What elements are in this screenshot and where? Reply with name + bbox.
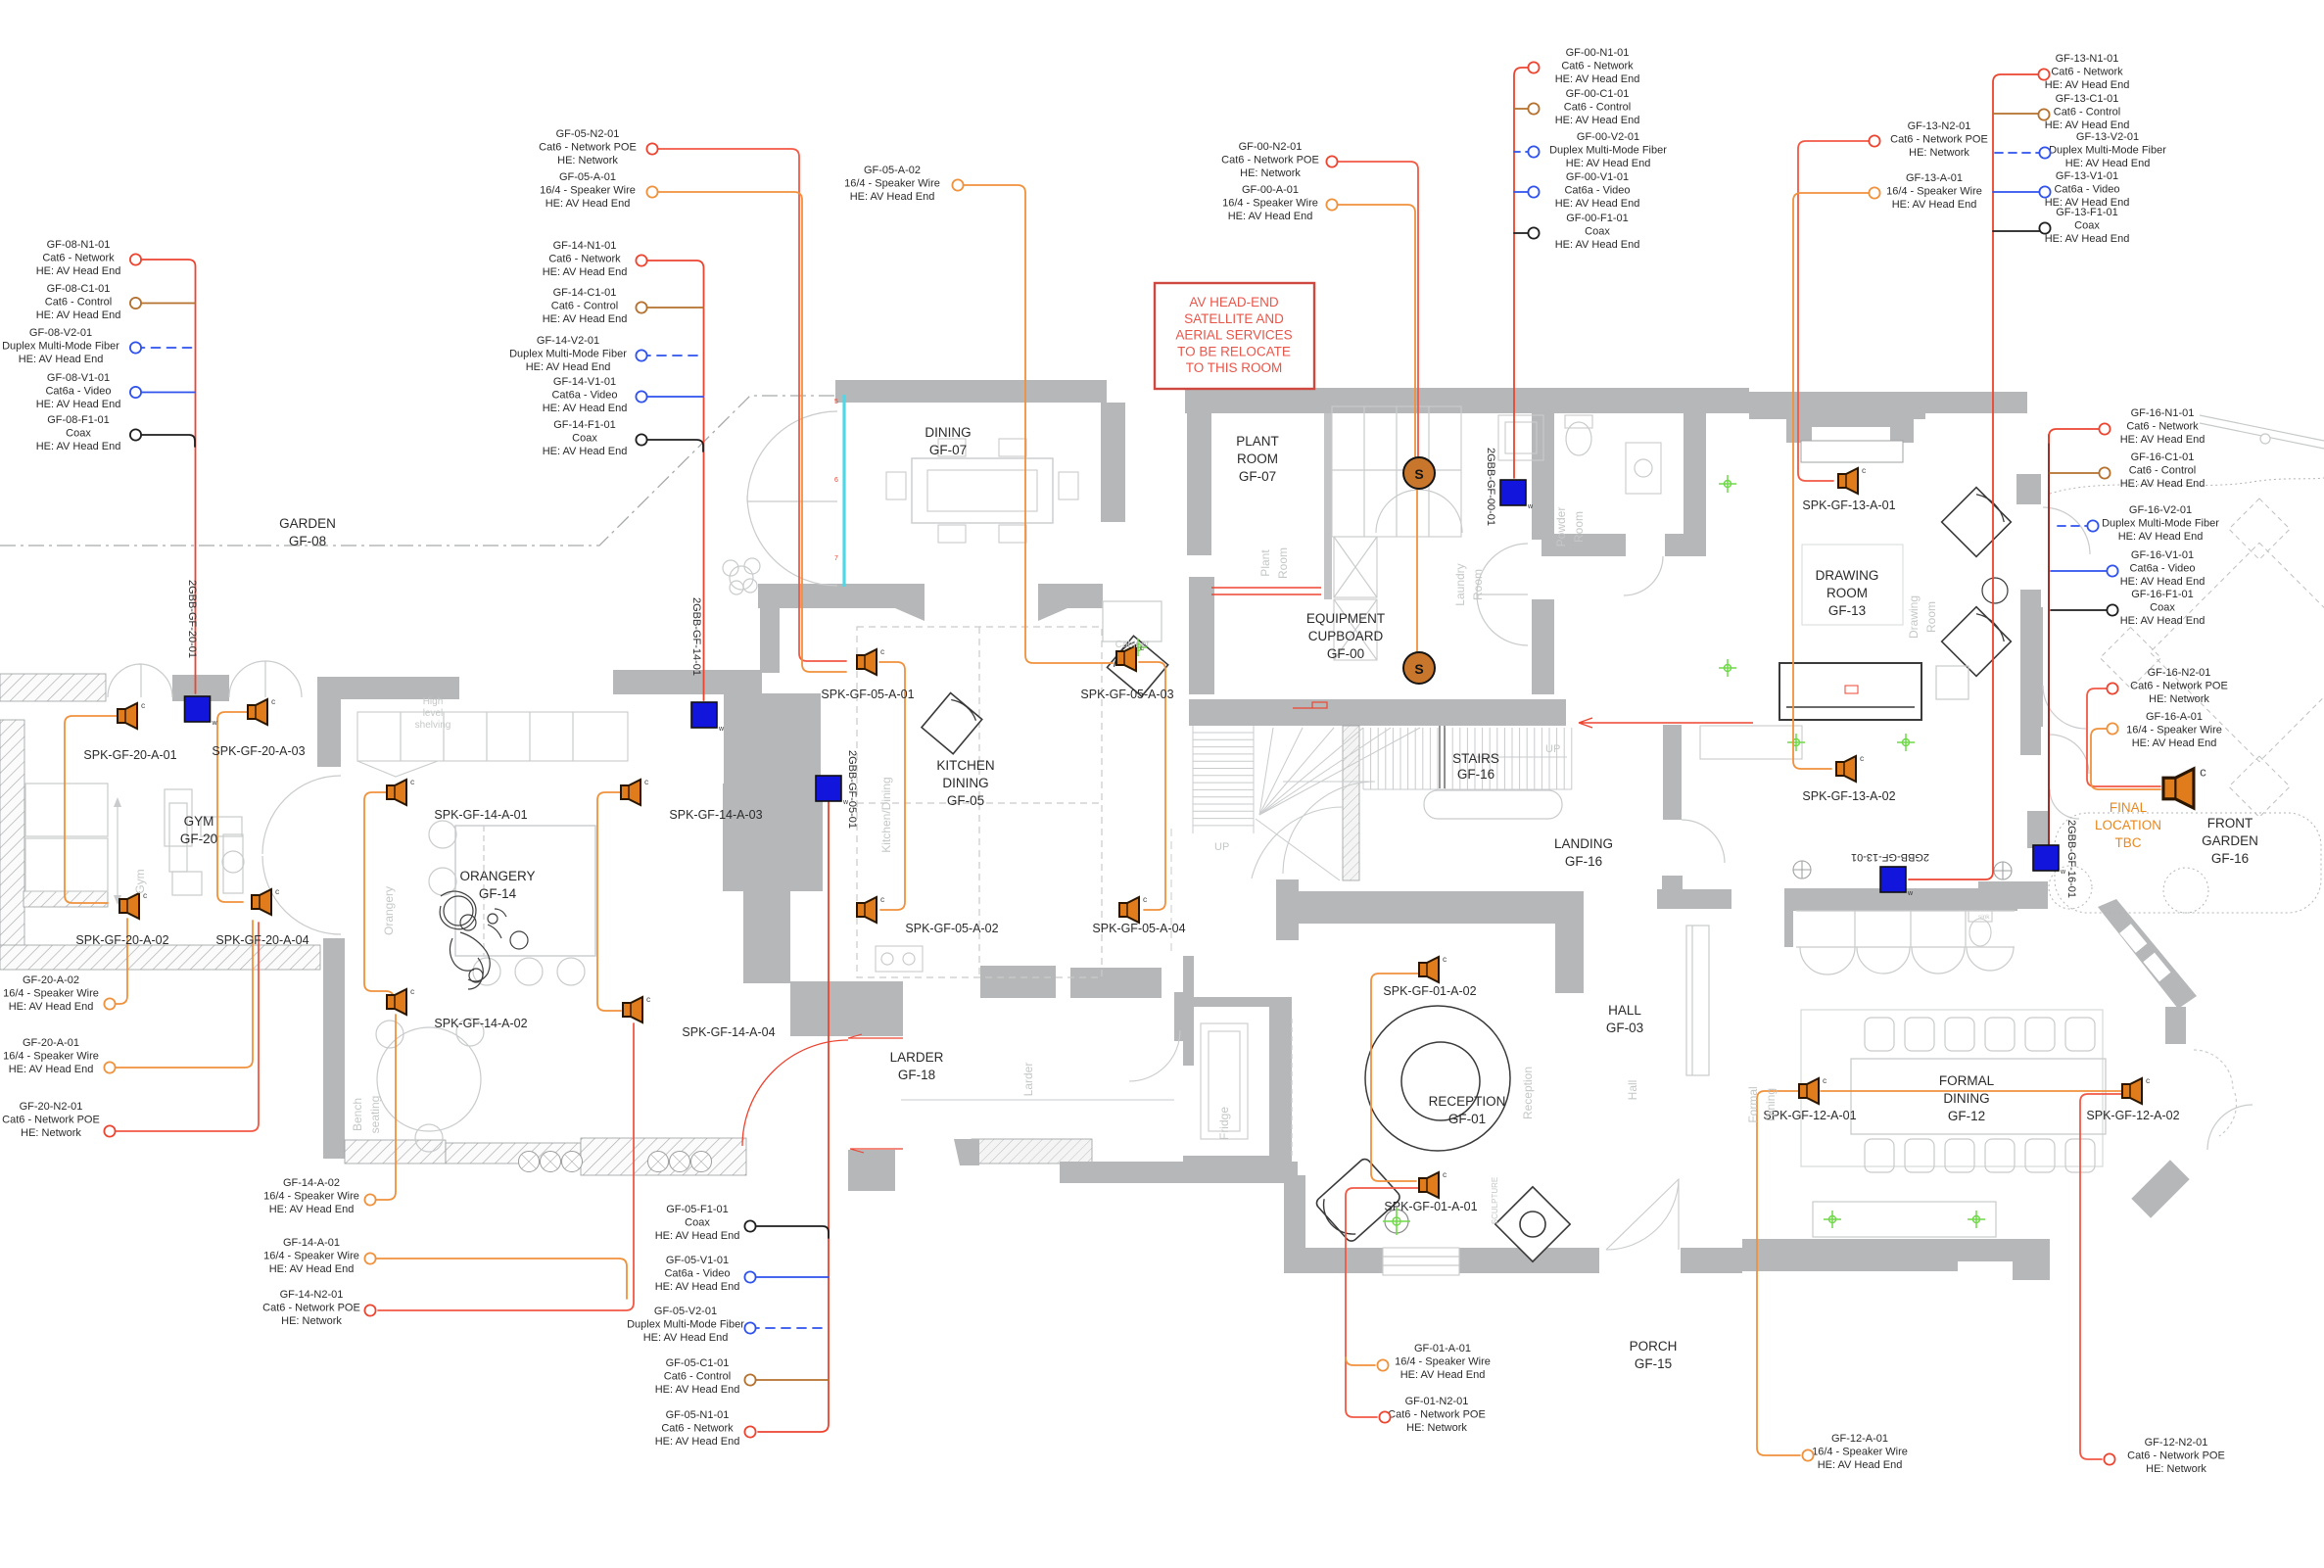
svg-text:Hall: Hall [1626,1080,1639,1101]
svg-text:GF-00-A-01: GF-00-A-01 [1242,184,1299,196]
svg-text:HE: AV Head End: HE: AV Head End [36,399,121,410]
svg-text:GF-08-F1-01: GF-08-F1-01 [47,414,110,426]
svg-text:GF-16-C1-01: GF-16-C1-01 [2131,451,2195,463]
svg-text:Cat6 - Network: Cat6 - Network [42,253,115,264]
svg-text:ROOM: ROOM [1237,451,1278,466]
svg-text:GF-13-V1-01: GF-13-V1-01 [2056,170,2118,182]
svg-text:HE: AV Head End: HE: AV Head End [269,1204,355,1215]
svg-text:GF-08-N1-01: GF-08-N1-01 [47,239,111,251]
svg-text:AV HEAD-END: AV HEAD-END [1189,295,1279,309]
svg-text:Cat6 - Network POE: Cat6 - Network POE [539,142,637,154]
svg-text:HE: AV Head End: HE: AV Head End [19,354,104,365]
svg-text:HE: Network: HE: Network [2146,1463,2206,1475]
svg-text:GF-14-A-02: GF-14-A-02 [283,1177,340,1189]
svg-text:GF-05-N1-01: GF-05-N1-01 [666,1409,730,1421]
svg-text:DRAWING: DRAWING [1816,568,1879,583]
svg-text:Duplex Multi-Mode Fiber: Duplex Multi-Mode Fiber [2102,518,2219,530]
svg-text:GYM: GYM [184,814,214,829]
svg-text:Room: Room [1276,547,1290,579]
svg-text:GF-16-F1-01: GF-16-F1-01 [2131,589,2194,600]
svg-text:GF-14-N2-01: GF-14-N2-01 [280,1289,344,1301]
svg-text:Larder: Larder [1021,1063,1035,1097]
svg-text:Room: Room [1572,511,1586,543]
svg-text:HE: AV Head End: HE: AV Head End [643,1332,729,1344]
svg-text:GF-14-V2-01: GF-14-V2-01 [537,335,599,347]
svg-text:S: S [1414,466,1423,482]
svg-text:Cat6 - Control: Cat6 - Control [551,301,618,312]
svg-text:Cat6 - Network POE: Cat6 - Network POE [1221,155,1319,166]
svg-text:HE: AV Head End: HE: AV Head End [655,1281,740,1293]
svg-text:Coax: Coax [685,1217,710,1229]
svg-text:ROOM: ROOM [1826,586,1868,600]
svg-text:HE: AV Head End: HE: AV Head End [2132,737,2217,749]
svg-text:GF-05-V1-01: GF-05-V1-01 [666,1255,729,1266]
svg-text:PORCH: PORCH [1630,1339,1678,1354]
svg-text:GF-00: GF-00 [1327,646,1364,661]
svg-text:GARDEN: GARDEN [2202,833,2258,848]
svg-text:GF-16-V2-01: GF-16-V2-01 [2129,504,2192,516]
svg-text:Drawing: Drawing [1907,595,1921,639]
svg-text:GARDEN: GARDEN [279,516,336,531]
svg-text:GF-00-N2-01: GF-00-N2-01 [1239,141,1303,153]
svg-text:HE: AV Head End: HE: AV Head End [655,1384,740,1396]
svg-text:KITCHEN: KITCHEN [936,758,994,773]
svg-text:UP: UP [1545,743,1560,755]
svg-text:GF-13-F1-01: GF-13-F1-01 [2056,207,2118,218]
svg-text:Coax: Coax [66,428,91,440]
svg-text:GF-13: GF-13 [1828,603,1866,618]
svg-text:HE: AV Head End: HE: AV Head End [545,198,631,210]
svg-text:HE: AV Head End: HE: AV Head End [1555,115,1640,126]
svg-text:UP: UP [1214,841,1229,853]
svg-text:PLANT: PLANT [1236,434,1279,449]
svg-text:Powder: Powder [1554,507,1568,547]
svg-text:16/4 - Speaker Wire: 16/4 - Speaker Wire [1886,186,1982,198]
svg-text:GF-05-F1-01: GF-05-F1-01 [666,1204,729,1215]
svg-text:GF-18: GF-18 [898,1068,935,1082]
svg-text:TO BE RELOCATE: TO BE RELOCATE [1177,344,1291,358]
svg-text:HE: AV Head End: HE: AV Head End [2120,434,2205,446]
svg-text:Cat6a - Video: Cat6a - Video [2054,184,2119,196]
svg-text:GF-14-F1-01: GF-14-F1-01 [553,419,616,431]
svg-text:SPK-GF-20-A-01: SPK-GF-20-A-01 [83,748,176,762]
svg-text:GF-14: GF-14 [479,886,517,901]
svg-text:HE: AV Head End: HE: AV Head End [36,441,121,452]
svg-text:HE: AV Head End: HE: AV Head End [269,1263,355,1275]
svg-text:GF-08-C1-01: GF-08-C1-01 [47,283,111,295]
svg-text:w: w [1527,503,1534,510]
svg-text:w: w [718,726,725,733]
svg-text:GF-12-N2-01: GF-12-N2-01 [2145,1437,2208,1449]
svg-text:HE: AV Head End: HE: AV Head End [526,361,611,373]
svg-text:2GBB-GF-00-01: 2GBB-GF-00-01 [1485,448,1496,526]
svg-text:16/4 - Speaker Wire: 16/4 - Speaker Wire [844,178,940,190]
svg-text:Plant: Plant [1258,549,1272,577]
svg-text:GF-16: GF-16 [1565,854,1602,869]
svg-text:w: w [212,720,218,727]
svg-text:GF-13-V2-01: GF-13-V2-01 [2076,131,2139,143]
svg-text:HE: AV Head End: HE: AV Head End [2045,233,2130,245]
svg-text:Cat6 - Network: Cat6 - Network [661,1423,734,1435]
svg-text:GF-16-N2-01: GF-16-N2-01 [2148,667,2211,679]
svg-text:HE: AV Head End: HE: AV Head End [1818,1459,1903,1471]
svg-text:Dining: Dining [1764,1088,1778,1121]
svg-text:Duplex Multi-Mode Fiber: Duplex Multi-Mode Fiber [1549,145,1667,157]
svg-text:S: S [1414,661,1423,677]
svg-text:Coax: Coax [1585,226,1610,238]
svg-text:HE: Network: HE: Network [1909,147,1969,159]
svg-text:GF-20-A-01: GF-20-A-01 [23,1037,79,1049]
svg-text:GF-20-A-02: GF-20-A-02 [23,974,79,986]
svg-text:Cat6 - Control: Cat6 - Control [664,1371,731,1383]
svg-text:DINING: DINING [942,776,988,790]
svg-text:HE: Network: HE: Network [1240,167,1301,179]
svg-text:LOCATION: LOCATION [2095,818,2161,832]
svg-text:seating: seating [368,1096,382,1134]
svg-text:HE: AV Head End: HE: AV Head End [850,191,935,203]
svg-text:SCULPTURE: SCULPTURE [1491,1177,1499,1224]
svg-text:SPK-GF-05-A-01: SPK-GF-05-A-01 [821,688,914,701]
svg-text:16/4 - Speaker Wire: 16/4 - Speaker Wire [540,185,636,197]
svg-text:Cat6a - Video: Cat6a - Video [1564,185,1630,197]
svg-text:Cat6 - Network POE: Cat6 - Network POE [2130,681,2228,692]
svg-text:7: 7 [834,555,838,562]
svg-text:HALL: HALL [1608,1003,1641,1018]
svg-text:Kitchen/Dining: Kitchen/Dining [879,777,893,852]
svg-text:16/4 - Speaker Wire: 16/4 - Speaker Wire [1222,198,1318,210]
svg-text:SPK-GF-05-A-02: SPK-GF-05-A-02 [905,922,998,935]
svg-text:Cat6 - Control: Cat6 - Control [1564,102,1631,114]
svg-text:GF-15: GF-15 [1635,1356,1672,1371]
svg-text:GF-20: GF-20 [180,832,217,846]
svg-text:SPK-GF-12-A-02: SPK-GF-12-A-02 [2086,1109,2179,1122]
svg-text:FINAL: FINAL [2110,800,2148,815]
svg-text:FORMAL: FORMAL [1939,1073,1995,1088]
svg-text:Cat6 - Network POE: Cat6 - Network POE [2127,1450,2225,1462]
svg-text:w: w [1907,890,1914,897]
svg-text:GF-13-A-01: GF-13-A-01 [1906,172,1963,184]
svg-text:HE: AV Head End: HE: AV Head End [1566,158,1651,169]
svg-text:GF-08: GF-08 [289,534,326,548]
svg-text:RECEPTION: RECEPTION [1429,1094,1506,1109]
svg-text:DINING: DINING [925,425,971,440]
svg-text:GF-12-A-01: GF-12-A-01 [1831,1433,1888,1445]
svg-text:GF-00-N1-01: GF-00-N1-01 [1566,47,1630,59]
svg-text:GF-05-A-02: GF-05-A-02 [864,165,921,176]
svg-text:Bench: Bench [351,1098,364,1131]
svg-text:GF-05-V2-01: GF-05-V2-01 [654,1306,717,1317]
svg-text:GF-16: GF-16 [2211,851,2249,866]
svg-text:SPK-GF-20-A-03: SPK-GF-20-A-03 [212,744,305,758]
svg-text:GF-08-V2-01: GF-08-V2-01 [29,327,92,339]
svg-text:HE: AV Head End: HE: AV Head End [9,1064,94,1075]
svg-text:LARDER: LARDER [890,1050,944,1065]
svg-text:sink: sink [1978,914,1990,921]
svg-text:Room: Room [1924,601,1938,633]
svg-text:GF-07: GF-07 [1239,469,1276,484]
svg-text:Cat6a - Video: Cat6a - Video [45,386,111,398]
svg-text:GF-00-F1-01: GF-00-F1-01 [1566,213,1629,224]
svg-text:GF-00-C1-01: GF-00-C1-01 [1566,88,1630,100]
svg-text:Coax: Coax [572,433,597,445]
svg-text:Gym: Gym [133,869,147,893]
svg-text:GF-14-V1-01: GF-14-V1-01 [553,376,616,388]
svg-text:Coax: Coax [2150,602,2175,614]
svg-text:GF-14-N1-01: GF-14-N1-01 [553,240,617,252]
svg-text:Cat6 - Network: Cat6 - Network [2126,421,2199,433]
svg-text:GF-12: GF-12 [1948,1109,1985,1123]
svg-text:Coax: Coax [2074,220,2100,232]
svg-text:GF-16-V1-01: GF-16-V1-01 [2131,549,2194,561]
svg-text:HE: AV Head End: HE: AV Head End [1400,1369,1486,1381]
svg-text:Cat6 - Network POE: Cat6 - Network POE [2,1115,100,1126]
svg-text:Duplex Multi-Mode Fiber: Duplex Multi-Mode Fiber [2049,145,2166,157]
svg-text:16/4 - Speaker Wire: 16/4 - Speaker Wire [3,1051,99,1063]
svg-text:GF-05-N2-01: GF-05-N2-01 [556,128,620,140]
svg-text:GF-13-N1-01: GF-13-N1-01 [2056,53,2119,65]
svg-text:Fridge: Fridge [1217,1107,1231,1140]
svg-text:SPK-GF-20-A-04: SPK-GF-20-A-04 [215,933,308,947]
svg-text:Cat6 - Network: Cat6 - Network [548,254,621,265]
svg-text:GF-14-A-01: GF-14-A-01 [283,1237,340,1249]
svg-text:Room: Room [1471,569,1485,600]
svg-text:5: 5 [834,399,838,405]
svg-text:HE: AV Head End: HE: AV Head End [543,446,628,457]
svg-text:HE: AV Head End: HE: AV Head End [543,266,628,278]
svg-text:HE: Network: HE: Network [281,1315,342,1327]
svg-text:6: 6 [834,477,838,484]
svg-text:HE: AV Head End: HE: AV Head End [1555,239,1640,251]
svg-text:GF-20-N2-01: GF-20-N2-01 [20,1101,83,1113]
svg-text:STAIRS: STAIRS [1452,751,1499,766]
svg-text:SPK-GF-01-A-01: SPK-GF-01-A-01 [1384,1200,1477,1213]
svg-text:GF-05: GF-05 [947,793,984,808]
svg-text:HE: AV Head End: HE: AV Head End [2120,615,2205,627]
svg-text:Duplex Multi-Mode Fiber: Duplex Multi-Mode Fiber [509,349,627,360]
svg-text:GF-13-C1-01: GF-13-C1-01 [2056,93,2119,105]
svg-text:SPK-GF-20-A-02: SPK-GF-20-A-02 [75,933,168,947]
svg-text:Cat6 - Network POE: Cat6 - Network POE [1388,1409,1486,1421]
svg-text:HE: Network: HE: Network [2149,693,2209,705]
svg-text:HE: AV Head End: HE: AV Head End [1228,211,1313,222]
svg-text:2GBB-GF-16-01: 2GBB-GF-16-01 [2065,820,2077,898]
svg-text:HE: AV Head End: HE: AV Head End [2045,119,2130,131]
svg-text:SPK-GF-14-A-01: SPK-GF-14-A-01 [434,808,527,822]
svg-text:16/4 - Speaker Wire: 16/4 - Speaker Wire [3,988,99,1000]
svg-text:16/4 - Speaker Wire: 16/4 - Speaker Wire [263,1191,359,1203]
svg-text:Cat6 - Network POE: Cat6 - Network POE [262,1303,360,1314]
svg-text:Cat6 - Control: Cat6 - Control [2054,107,2120,119]
svg-text:HE: AV Head End: HE: AV Head End [2118,531,2204,543]
svg-text:GF-05-A-01: GF-05-A-01 [559,171,616,183]
svg-text:HE: AV Head End: HE: AV Head End [2120,478,2205,490]
svg-text:16/4 - Speaker Wire: 16/4 - Speaker Wire [1812,1447,1908,1458]
svg-text:HE: Network: HE: Network [557,155,618,166]
svg-text:c: c [2200,765,2206,780]
svg-text:Cat6 - Control: Cat6 - Control [45,297,112,309]
svg-text:Cabinet: Cabinet [1115,640,1150,650]
svg-text:SPK-GF-13-A-02: SPK-GF-13-A-02 [1802,789,1895,803]
svg-text:HE: AV Head End: HE: AV Head End [36,309,121,321]
svg-text:HE: AV Head End: HE: AV Head End [1555,73,1640,85]
svg-text:Reception: Reception [1521,1067,1535,1119]
svg-text:HE: AV Head End: HE: AV Head End [9,1001,94,1013]
svg-text:HE: AV Head End: HE: AV Head End [2045,79,2130,91]
svg-text:Cat6 - Network POE: Cat6 - Network POE [1890,134,1988,146]
svg-text:16/4 - Speaker Wire: 16/4 - Speaker Wire [263,1251,359,1262]
svg-text:2GBB-GF-14-01: 2GBB-GF-14-01 [690,597,702,676]
svg-text:Cat6 - Control: Cat6 - Control [2129,465,2196,477]
svg-text:Duplex Multi-Mode Fiber: Duplex Multi-Mode Fiber [2,341,119,353]
svg-text:SPK-GF-14-A-02: SPK-GF-14-A-02 [434,1017,527,1030]
svg-text:SPK-GF-13-A-01: SPK-GF-13-A-01 [1802,499,1895,512]
svg-text:TO THIS ROOM: TO THIS ROOM [1186,360,1283,375]
svg-text:level: level [423,708,444,719]
svg-text:EQUIPMENT: EQUIPMENT [1306,611,1385,626]
svg-text:GF-13-N2-01: GF-13-N2-01 [1908,120,1971,132]
svg-text:2GBB-GF-13-01: 2GBB-GF-13-01 [1851,851,1929,863]
svg-text:Laundry: Laundry [1453,563,1467,605]
svg-text:High: High [423,696,444,707]
svg-text:SPK-GF-01-A-02: SPK-GF-01-A-02 [1383,984,1476,998]
svg-text:GF-14-C1-01: GF-14-C1-01 [553,287,617,299]
svg-text:Cat6 - Network: Cat6 - Network [2051,67,2123,78]
svg-text:HE: Network: HE: Network [1406,1422,1467,1434]
svg-text:16/4 - Speaker Wire: 16/4 - Speaker Wire [2126,725,2222,736]
svg-text:w: w [2060,869,2066,876]
svg-text:shelving: shelving [415,720,451,731]
svg-text:GF-01: GF-01 [1448,1112,1486,1126]
svg-text:GF-00-V1-01: GF-00-V1-01 [1566,171,1629,183]
svg-text:HE: AV Head End: HE: AV Head End [655,1436,740,1448]
svg-text:HE: AV Head End: HE: AV Head End [2065,158,2151,169]
svg-text:HE: AV Head End: HE: AV Head End [36,265,121,277]
svg-text:GF-08-V1-01: GF-08-V1-01 [47,372,110,384]
svg-text:GF-01-N2-01: GF-01-N2-01 [1405,1396,1469,1407]
svg-text:Cat6a - Video: Cat6a - Video [664,1268,730,1280]
svg-text:GF-05-C1-01: GF-05-C1-01 [666,1357,730,1369]
svg-text:Cat6a - Video: Cat6a - Video [2129,563,2195,575]
svg-text:Cat6 - Network: Cat6 - Network [1561,61,1634,72]
svg-text:GF-16-N1-01: GF-16-N1-01 [2131,407,2195,419]
svg-text:GF-16-A-01: GF-16-A-01 [2146,711,2203,723]
svg-text:HE: AV Head End: HE: AV Head End [1555,198,1640,210]
svg-text:GF-16: GF-16 [1457,767,1494,782]
svg-text:AERIAL SERVICES: AERIAL SERVICES [1175,328,1292,343]
svg-text:FRONT: FRONT [2207,816,2253,831]
svg-text:HE: AV Head End: HE: AV Head End [543,313,628,325]
svg-text:SPK-GF-05-A-03: SPK-GF-05-A-03 [1080,688,1173,701]
svg-text:HE: Network: HE: Network [21,1127,81,1139]
svg-text:16/4 - Speaker Wire: 16/4 - Speaker Wire [1395,1356,1491,1368]
svg-text:HE: AV Head End: HE: AV Head End [1892,199,1977,211]
svg-text:Formal: Formal [1746,1086,1760,1122]
svg-text:2GBB-GF-20-01: 2GBB-GF-20-01 [186,580,198,658]
svg-text:TBC: TBC [2115,835,2142,850]
svg-text:CUPBOARD: CUPBOARD [1308,629,1384,643]
svg-text:HE: AV Head End: HE: AV Head End [655,1230,740,1242]
svg-text:Duplex Multi-Mode Fiber: Duplex Multi-Mode Fiber [627,1319,744,1331]
svg-text:DINING: DINING [1943,1091,1989,1106]
svg-text:HE: AV Head End: HE: AV Head End [2120,576,2205,588]
svg-text:GF-00-V2-01: GF-00-V2-01 [1577,131,1639,143]
svg-text:GF-01-A-01: GF-01-A-01 [1414,1343,1471,1354]
svg-text:2GBB-GF-05-01: 2GBB-GF-05-01 [846,750,858,829]
svg-text:GF-03: GF-03 [1606,1021,1643,1035]
svg-text:LANDING: LANDING [1554,836,1613,851]
svg-text:GF-07: GF-07 [929,443,967,457]
svg-text:Cat6a - Video: Cat6a - Video [551,390,617,402]
svg-text:SPK-GF-14-A-03: SPK-GF-14-A-03 [669,808,762,822]
svg-text:SPK-GF-14-A-04: SPK-GF-14-A-04 [682,1025,775,1039]
svg-text:HE: AV Head End: HE: AV Head End [543,403,628,414]
svg-text:ORANGERY: ORANGERY [459,869,535,883]
svg-text:SPK-GF-05-A-04: SPK-GF-05-A-04 [1092,922,1185,935]
svg-text:Orangery: Orangery [382,886,396,935]
svg-text:SATELLITE AND: SATELLITE AND [1184,311,1284,326]
